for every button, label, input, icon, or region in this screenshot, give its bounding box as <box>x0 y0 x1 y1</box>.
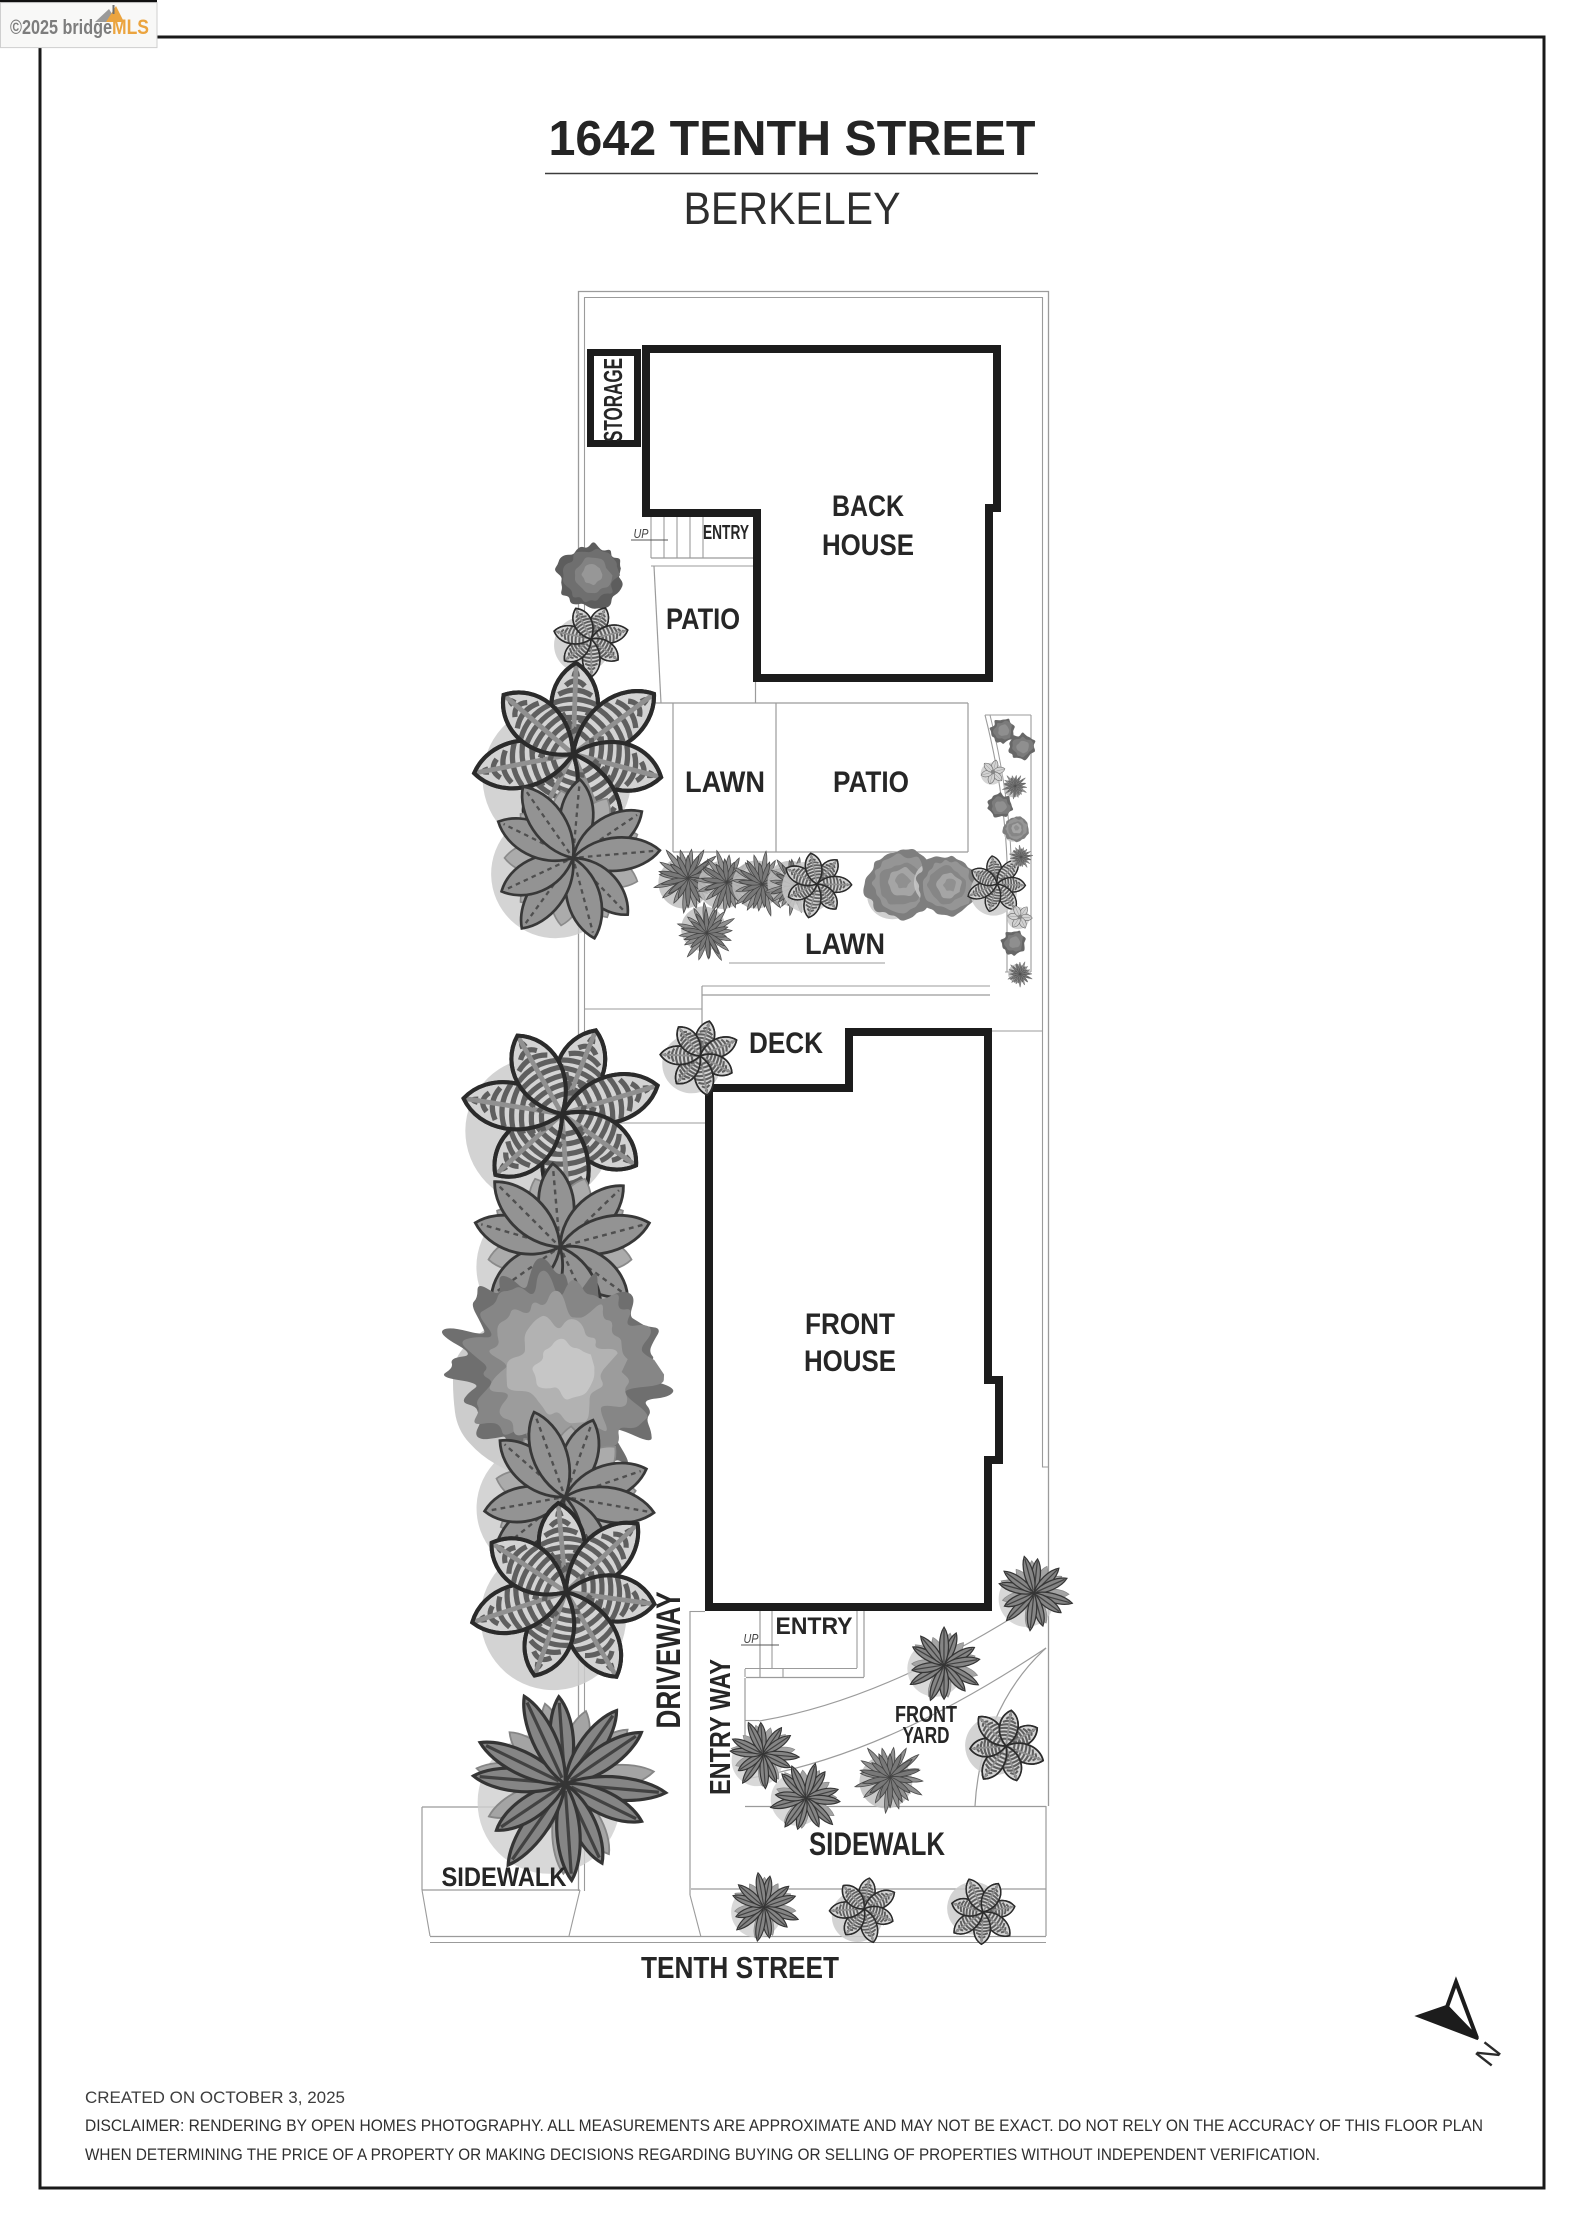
svg-text:TENTH STREET: TENTH STREET <box>641 1950 839 1985</box>
svg-text:ENTRY: ENTRY <box>776 1613 853 1640</box>
svg-text:ENTRY WAY: ENTRY WAY <box>705 1659 737 1795</box>
svg-text:DECK: DECK <box>749 1027 823 1060</box>
svg-text:UP: UP <box>744 1632 760 1646</box>
svg-text:UP: UP <box>634 527 650 541</box>
svg-text:HOUSE: HOUSE <box>822 529 914 562</box>
svg-text:N: N <box>1470 2036 1508 2072</box>
svg-text:DISCLAIMER: RENDERING BY OPEN: DISCLAIMER: RENDERING BY OPEN HOMES PHOT… <box>85 2116 1483 2135</box>
svg-text:SIDEWALK: SIDEWALK <box>442 1862 567 1892</box>
svg-text:CREATED ON OCTOBER 3, 2025: CREATED ON OCTOBER 3, 2025 <box>85 2088 345 2107</box>
svg-text:PATIO: PATIO <box>666 603 740 636</box>
svg-text:SIDEWALK: SIDEWALK <box>809 1826 945 1862</box>
svg-text:STORAGE: STORAGE <box>598 358 628 442</box>
svg-text:DRIVEWAY: DRIVEWAY <box>650 1591 688 1728</box>
svg-text:LAWN: LAWN <box>805 928 885 961</box>
svg-text:FRONT: FRONT <box>805 1308 895 1341</box>
svg-text:©2025 bridge: ©2025 bridge <box>10 17 112 39</box>
svg-text:WHEN DETERMINING THE PRICE OF: WHEN DETERMINING THE PRICE OF A PROPERTY… <box>85 2145 1320 2164</box>
svg-text:PATIO: PATIO <box>833 766 909 799</box>
svg-text:HOUSE: HOUSE <box>804 1345 896 1378</box>
svg-text:1642 TENTH STREET: 1642 TENTH STREET <box>549 112 1036 166</box>
svg-text:BERKELEY: BERKELEY <box>684 183 901 234</box>
svg-text:ENTRY: ENTRY <box>703 522 749 544</box>
svg-text:YARD: YARD <box>903 1722 950 1748</box>
svg-text:LAWN: LAWN <box>685 766 765 799</box>
svg-text:BACK: BACK <box>832 490 904 523</box>
